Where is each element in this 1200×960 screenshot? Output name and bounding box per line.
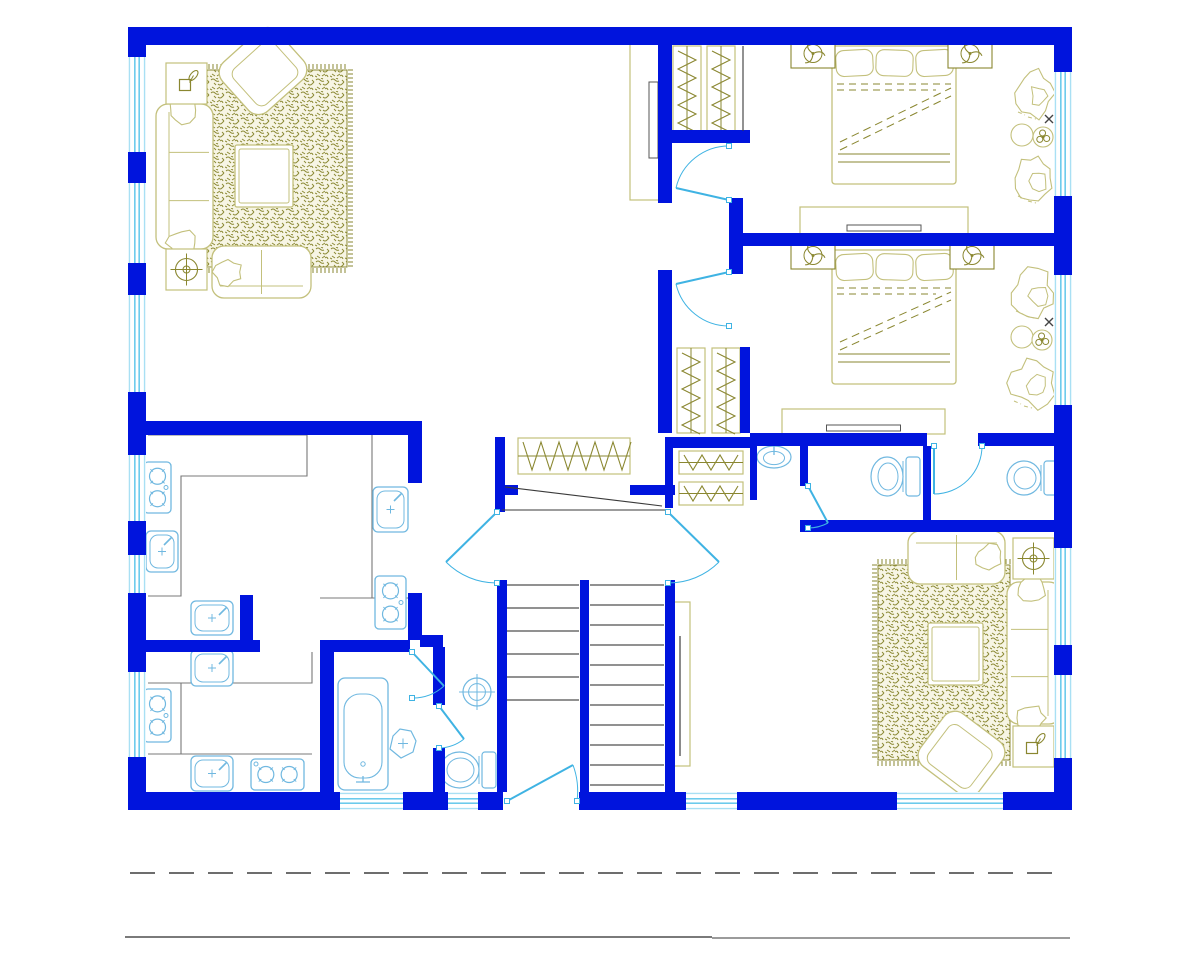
interior-wall: [750, 433, 927, 446]
interior-wall: [128, 640, 260, 652]
loveseat: [908, 531, 1005, 584]
interior-wall: [495, 485, 518, 495]
toilet: [871, 457, 920, 496]
interior-wall: [495, 437, 505, 512]
round-table: [1011, 326, 1033, 348]
kitchen-sink: [191, 601, 233, 635]
top-wall: [128, 27, 1072, 45]
door-jamb: [410, 650, 415, 655]
interior-wall: [497, 580, 507, 792]
window: [1054, 548, 1072, 645]
door-jamb: [575, 799, 580, 804]
side-table-ceiling-fan: [166, 249, 207, 290]
toilet: [1007, 461, 1058, 495]
bowl: [440, 752, 479, 788]
door-jamb: [980, 444, 985, 449]
coffee-table: [235, 145, 293, 207]
window: [128, 555, 146, 593]
door-jamb: [505, 799, 510, 804]
door-jamb: [806, 484, 811, 489]
coffee-table: [928, 623, 983, 685]
interior-wall: [334, 640, 410, 652]
interior-wall: [658, 140, 672, 203]
window: [340, 792, 403, 810]
interior-wall: [750, 438, 757, 500]
interior-wall: [408, 421, 422, 483]
stove: [144, 462, 171, 513]
door-jamb: [727, 270, 732, 275]
pillow: [835, 49, 873, 77]
kitchen-sink: [373, 487, 408, 532]
window: [897, 792, 1003, 810]
dresser-tv: [800, 207, 968, 234]
door-jamb: [727, 198, 732, 203]
window: [128, 183, 146, 263]
tv-cabinet: [630, 40, 660, 200]
door-jamb: [666, 581, 671, 586]
side-table-plant: [166, 63, 207, 104]
sofa: [1007, 575, 1061, 733]
interior-wall: [420, 635, 443, 647]
window: [128, 295, 146, 392]
floor-plan-svg: [0, 0, 1200, 960]
closet-hanging-rack: [679, 451, 743, 474]
nightstand-fan: [791, 242, 835, 269]
door-jamb: [495, 510, 500, 515]
nightstand-fan: [950, 242, 994, 269]
double-bed: [832, 46, 956, 184]
closet-hanging-rack: [518, 438, 631, 474]
round-table: [1011, 124, 1033, 146]
double-bed: [832, 250, 956, 384]
interior-wall: [672, 437, 750, 448]
side-table-plant: [1013, 726, 1054, 767]
interior-wall: [658, 45, 672, 140]
toilet: [440, 752, 496, 788]
tank: [482, 752, 496, 788]
closet-hanging-rack: [673, 46, 701, 132]
closet-hanging-rack: [712, 348, 740, 434]
door-jamb: [727, 324, 732, 329]
stove: [375, 576, 406, 629]
interior-wall: [146, 421, 408, 435]
loveseat: [212, 246, 311, 298]
stove: [251, 759, 304, 790]
door-jamb: [666, 510, 671, 515]
door-jamb: [437, 746, 442, 751]
interior-wall: [729, 198, 743, 274]
window: [1054, 72, 1072, 196]
floor-plan: [0, 0, 1200, 960]
window: [1054, 675, 1072, 758]
interior-wall: [408, 593, 422, 640]
window: [128, 672, 146, 757]
side-table-ceiling-fan: [1013, 538, 1054, 579]
stove: [144, 689, 171, 742]
door-jamb: [727, 144, 732, 149]
window: [128, 57, 146, 152]
tank: [906, 457, 920, 496]
pillow: [876, 49, 914, 76]
window: [1054, 275, 1072, 405]
door-jamb: [437, 704, 442, 709]
interior-wall: [800, 446, 808, 486]
interior-wall: [978, 433, 1072, 446]
closet-hanging-rack: [677, 348, 705, 434]
dresser-tv: [782, 409, 945, 434]
door-jamb: [495, 581, 500, 586]
interior-wall: [743, 233, 1072, 246]
interior-wall: [665, 437, 673, 508]
interior-wall: [320, 640, 334, 792]
interior-wall: [923, 446, 931, 532]
pillow: [876, 253, 914, 280]
pillow: [835, 253, 873, 281]
window: [448, 792, 478, 810]
kitchen-sink: [191, 756, 233, 791]
interior-wall: [658, 270, 672, 433]
closet-hanging-rack: [707, 46, 735, 132]
window: [686, 792, 737, 810]
window: [128, 455, 146, 521]
interior-wall: [740, 347, 750, 433]
closet-hanging-rack: [679, 482, 743, 505]
door-jamb: [932, 444, 937, 449]
door-jamb: [806, 526, 811, 531]
bathtub: [338, 678, 388, 790]
sofa: [156, 98, 213, 256]
interior-wall: [800, 520, 1072, 532]
kitchen-sink: [191, 650, 233, 686]
interior-wall: [580, 580, 589, 792]
door-jamb: [410, 696, 415, 701]
interior-wall: [630, 485, 675, 495]
interior-wall: [665, 580, 675, 792]
pillow: [915, 253, 953, 281]
wall-opening: [503, 792, 579, 810]
interior-wall: [433, 748, 445, 792]
kitchen-sink: [146, 531, 178, 572]
